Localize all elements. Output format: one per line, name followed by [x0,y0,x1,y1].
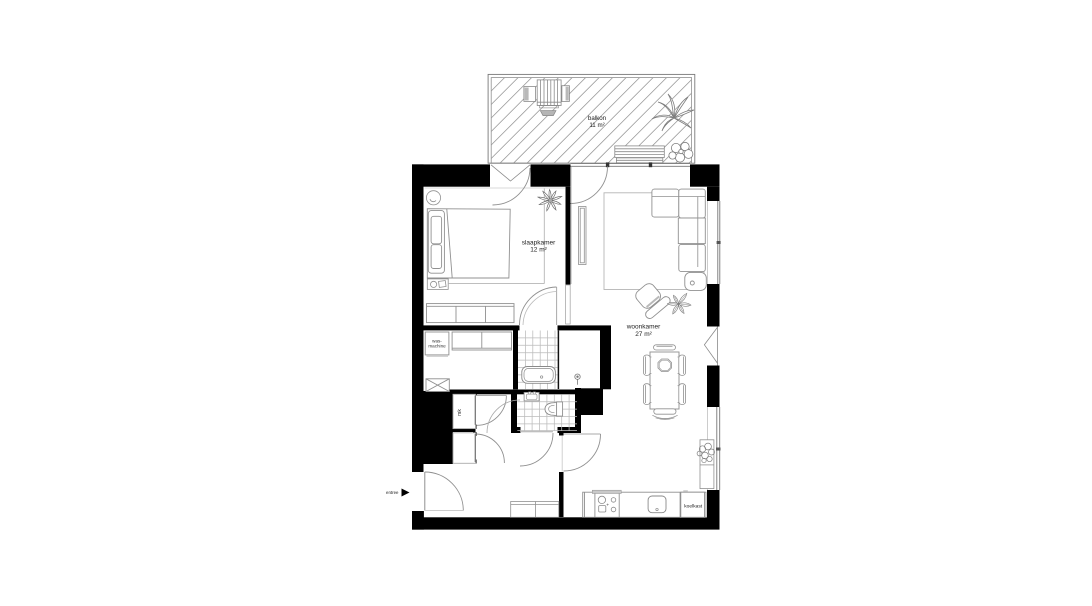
svg-text:12 m²: 12 m² [530,247,547,254]
svg-text:machine: machine [428,344,446,349]
svg-text:slaapkamer: slaapkamer [522,240,556,247]
svg-text:woonkamer: woonkamer [626,324,661,331]
svg-text:mk: mk [457,409,463,416]
svg-text:11 m²: 11 m² [589,122,604,129]
svg-text:balkon: balkon [588,115,607,122]
svg-text:27 m²: 27 m² [635,331,652,338]
svg-text:koelkast: koelkast [684,504,703,510]
svg-text:entree: entree [386,490,399,495]
